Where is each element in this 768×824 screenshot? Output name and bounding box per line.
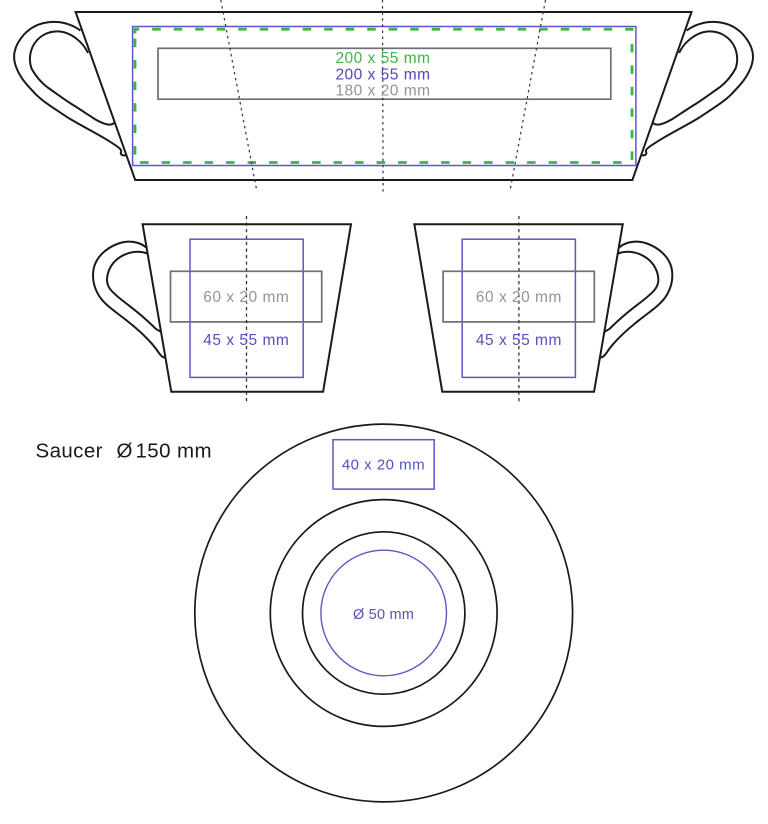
- svg-text:180 x 20 mm: 180 x 20 mm: [335, 83, 430, 100]
- svg-text:45 x 55 mm: 45 x 55 mm: [476, 332, 562, 349]
- svg-text:60 x 20 mm: 60 x 20 mm: [476, 289, 562, 306]
- svg-text:200 x 55 mm: 200 x 55 mm: [335, 66, 430, 83]
- svg-text:200 x 55 mm: 200 x 55 mm: [335, 50, 430, 67]
- svg-text:Ø: Ø: [117, 440, 133, 463]
- svg-text:40 x 20 mm: 40 x 20 mm: [342, 457, 425, 474]
- svg-text:60 x 20 mm: 60 x 20 mm: [203, 289, 289, 306]
- svg-text:150 mm: 150 mm: [136, 440, 212, 463]
- svg-text:Ø 50 mm: Ø 50 mm: [353, 607, 414, 623]
- svg-text:Saucer: Saucer: [36, 440, 103, 463]
- svg-text:45 x 55 mm: 45 x 55 mm: [203, 332, 289, 349]
